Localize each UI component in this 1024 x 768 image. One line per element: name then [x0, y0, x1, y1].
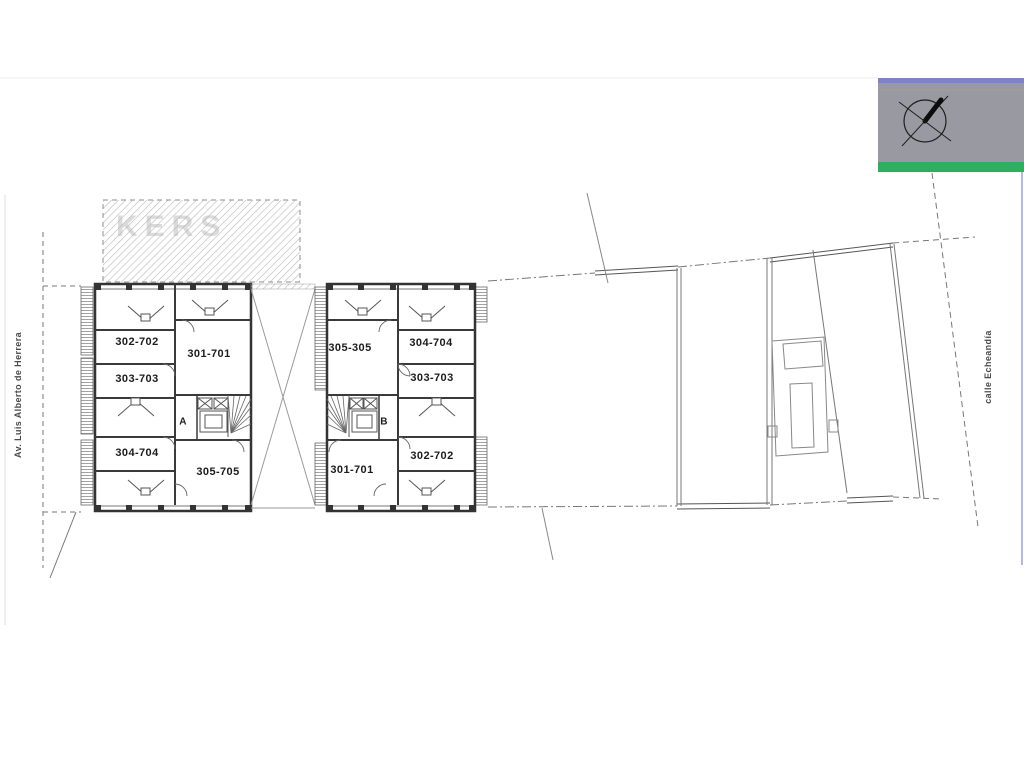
left-street-boundary	[43, 232, 81, 578]
unit-label-a-302-702: 302-702	[115, 336, 158, 348]
street-label-right: calle Echeandía	[983, 330, 993, 404]
street-label-left: Av. Luis Alberto de Herrera	[13, 332, 23, 458]
core-label-a: A	[179, 417, 187, 428]
unit-label-b-301-701: 301-701	[330, 464, 373, 476]
unit-label-b-305-305: 305-305	[328, 342, 371, 354]
rear-lot	[488, 173, 978, 560]
unit-label-a-301-701: 301-701	[187, 348, 230, 360]
building-b	[315, 284, 487, 511]
unit-label-a-304-704: 304-704	[115, 447, 158, 459]
unit-label-a-303-703: 303-703	[115, 373, 158, 385]
floor-plan-page: KERS Av. Luis Alberto de Herrera calle E…	[0, 0, 1024, 768]
core-label-b: B	[380, 417, 388, 428]
unit-label-a-305-705: 305-705	[196, 466, 239, 478]
watermark-text: KERS	[116, 210, 227, 244]
north-arrow-icon	[878, 78, 1024, 172]
unit-label-b-304-704: 304-704	[409, 337, 452, 349]
unit-label-b-303-703: 303-703	[410, 372, 453, 384]
courtyard-gap	[251, 284, 315, 508]
unit-label-b-302-702: 302-702	[410, 450, 453, 462]
